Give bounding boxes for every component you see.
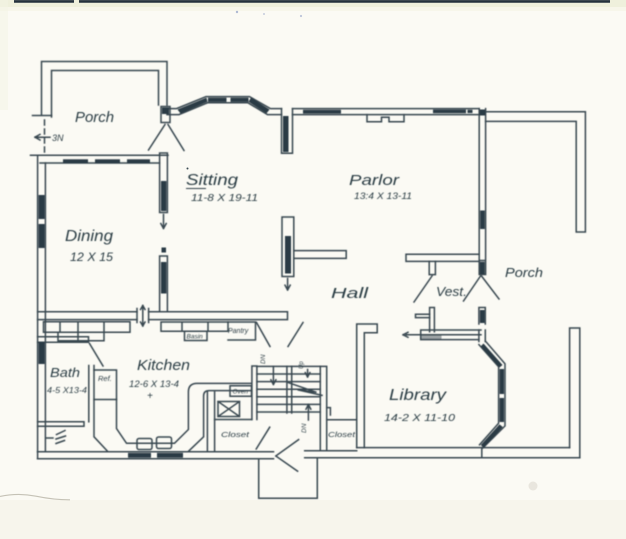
- svg-text:Bath: Bath: [50, 366, 80, 380]
- svg-text:12-6 X 13-4: 12-6 X 13-4: [129, 379, 179, 390]
- svg-text:Kitchen: Kitchen: [137, 357, 190, 374]
- svg-text:Library: Library: [389, 387, 447, 404]
- svg-text:Closet: Closet: [328, 432, 356, 439]
- svg-text:DN: DN: [260, 354, 267, 364]
- svg-text:Hall: Hall: [331, 285, 369, 302]
- svg-text:3N: 3N: [52, 133, 64, 143]
- svg-text:13:4 X 13-11: 13:4 X 13-11: [354, 191, 412, 202]
- svg-text:14-2 X 11-10: 14-2 X 11-10: [384, 413, 456, 424]
- svg-text:Parlor: Parlor: [349, 173, 401, 189]
- svg-text:11-8 X 19-11: 11-8 X 19-11: [191, 193, 258, 204]
- svg-text:Dining: Dining: [65, 228, 113, 245]
- svg-text:12 X 15: 12 X 15: [70, 252, 114, 264]
- svg-text:Closet: Closet: [221, 432, 250, 439]
- svg-text:Basin: Basin: [187, 334, 204, 341]
- svg-text:Ref.: Ref.: [98, 374, 112, 383]
- svg-text:Up: Up: [299, 361, 305, 369]
- svg-text:Sitting: Sitting: [186, 172, 238, 189]
- svg-text:4-5 X13-4: 4-5 X13-4: [47, 386, 88, 395]
- svg-text:Vest.: Vest.: [436, 285, 467, 299]
- svg-text:Oven: Oven: [233, 389, 249, 396]
- svg-text:DN: DN: [301, 423, 308, 433]
- svg-text:Porch: Porch: [505, 266, 543, 280]
- svg-text:Pantry: Pantry: [228, 328, 249, 335]
- svg-text:+: +: [147, 391, 153, 402]
- svg-text:Porch: Porch: [75, 109, 114, 126]
